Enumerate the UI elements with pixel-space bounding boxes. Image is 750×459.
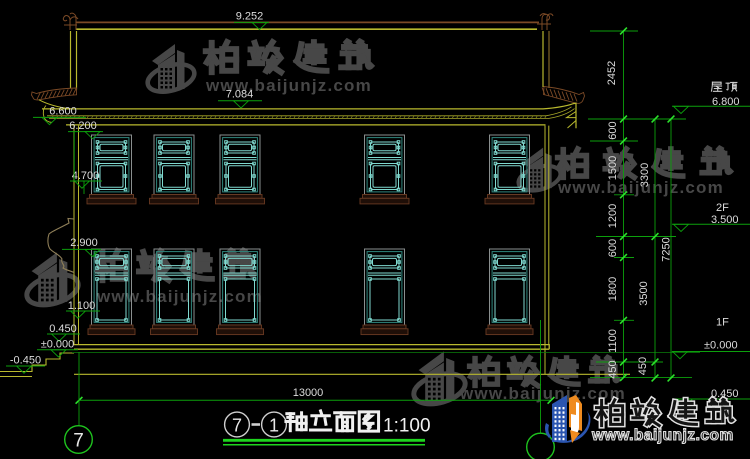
- svg-text:1100: 1100: [607, 329, 619, 353]
- svg-text:450: 450: [607, 360, 619, 378]
- svg-text:450: 450: [637, 357, 649, 375]
- svg-text:1: 1: [269, 416, 279, 436]
- svg-text:7250: 7250: [661, 237, 673, 261]
- svg-text:2.900: 2.900: [70, 237, 98, 249]
- svg-text:600: 600: [607, 121, 619, 139]
- svg-text:1800: 1800: [607, 277, 619, 301]
- svg-text:6.800: 6.800: [712, 96, 740, 108]
- svg-text:2452: 2452: [606, 61, 618, 85]
- svg-text:-0.450: -0.450: [10, 355, 41, 367]
- svg-text:4.700: 4.700: [72, 170, 100, 182]
- svg-text:1:100: 1:100: [383, 416, 431, 437]
- svg-text:±0.000: ±0.000: [41, 339, 75, 351]
- svg-text:3300: 3300: [639, 163, 651, 187]
- svg-text:7.084: 7.084: [226, 89, 254, 101]
- svg-text:1F: 1F: [716, 317, 729, 329]
- svg-text:1200: 1200: [607, 204, 619, 228]
- svg-text:2F: 2F: [716, 202, 729, 214]
- svg-text:9.252: 9.252: [236, 11, 264, 23]
- svg-text:www.baijunjz.com: www.baijunjz.com: [96, 287, 263, 306]
- svg-text:7: 7: [73, 431, 84, 452]
- svg-text:6.200: 6.200: [69, 120, 97, 132]
- svg-text:3.500: 3.500: [711, 214, 739, 226]
- svg-text:www.baijunjz.com: www.baijunjz.com: [591, 427, 734, 444]
- svg-text:±0.000: ±0.000: [704, 340, 738, 352]
- svg-text:13000: 13000: [293, 387, 324, 399]
- svg-text:3500: 3500: [638, 281, 650, 305]
- svg-text:1.100: 1.100: [68, 300, 96, 312]
- svg-text:1500: 1500: [607, 156, 619, 180]
- svg-text:6.600: 6.600: [49, 106, 77, 118]
- svg-text:600: 600: [607, 239, 619, 257]
- svg-text:0.450: 0.450: [49, 323, 77, 335]
- svg-text:7: 7: [232, 416, 242, 436]
